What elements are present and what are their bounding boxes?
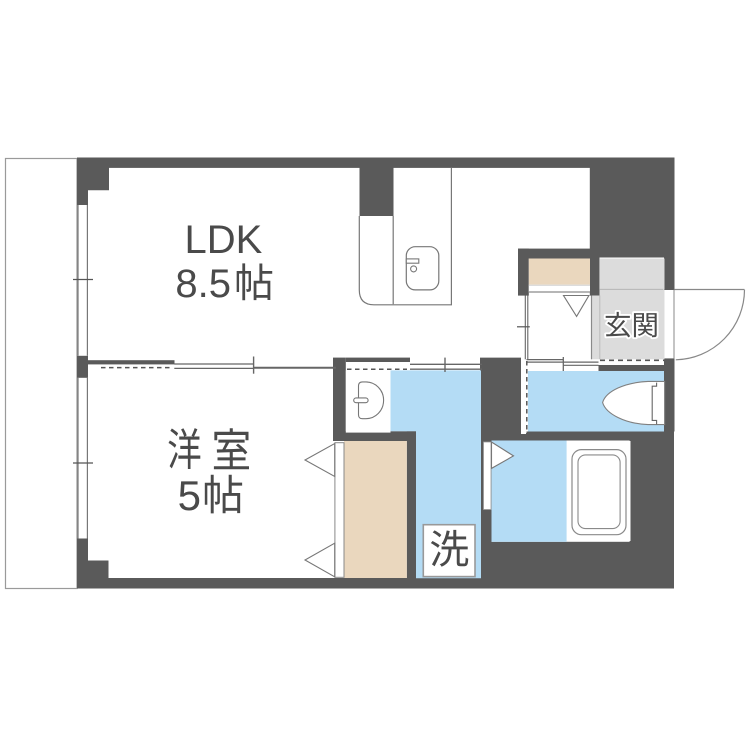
svg-text:5: 5: [178, 472, 201, 519]
svg-text:LDK: LDK: [184, 218, 262, 262]
svg-text:8.5: 8.5: [175, 262, 231, 306]
